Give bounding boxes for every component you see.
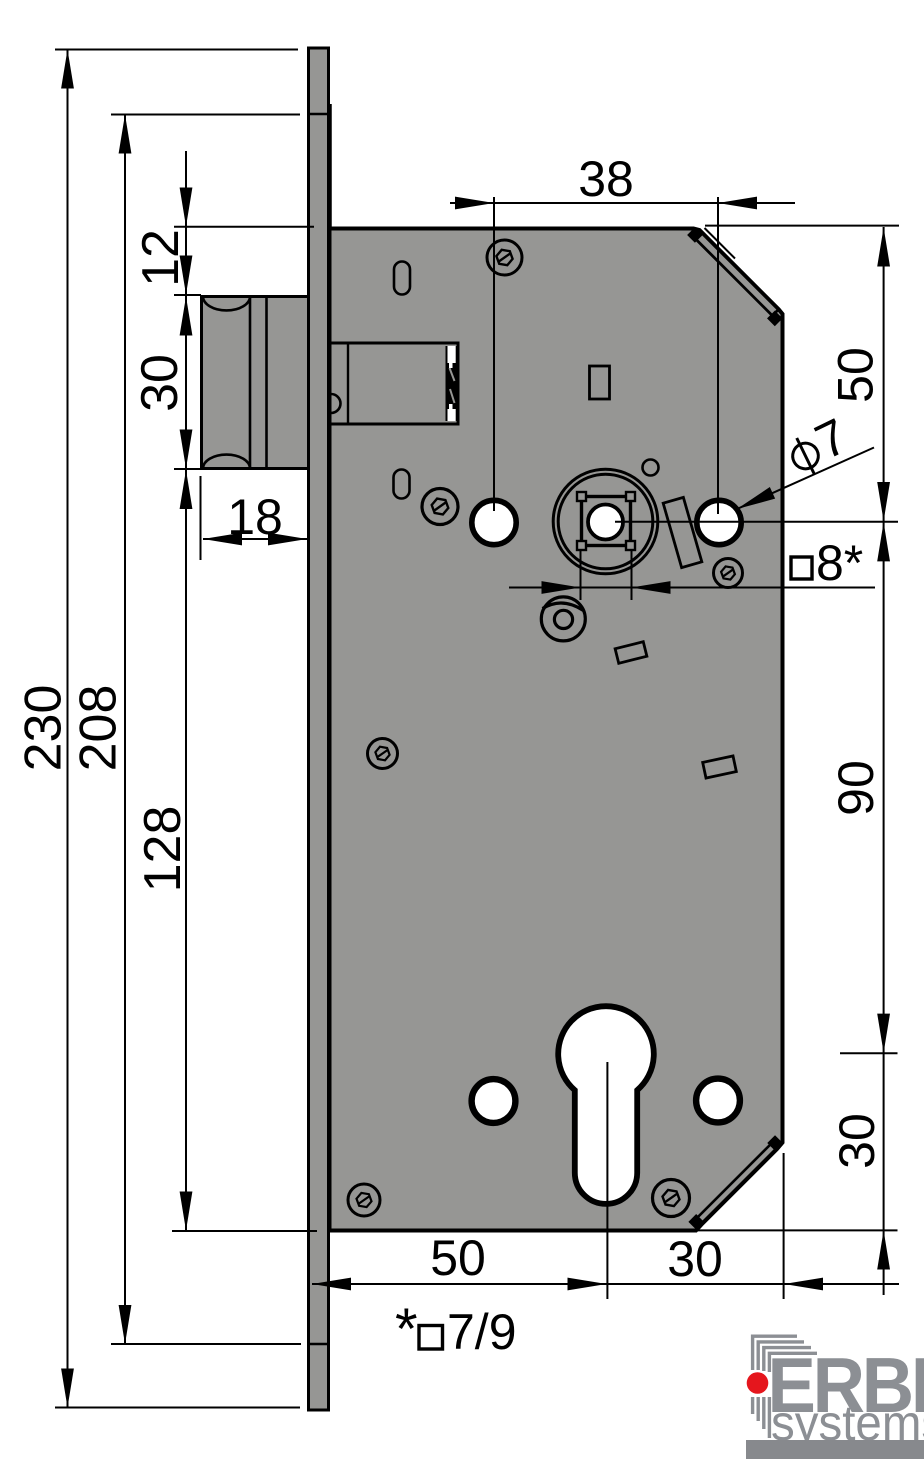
svg-text:50: 50: [430, 1230, 486, 1286]
svg-text:12: 12: [132, 229, 190, 287]
svg-text:230: 230: [15, 685, 73, 772]
svg-text:50: 50: [828, 347, 884, 403]
svg-text:30: 30: [131, 354, 189, 412]
svg-text:30: 30: [667, 1231, 723, 1287]
svg-text:*: *: [395, 1297, 418, 1362]
svg-text:8*: 8*: [816, 535, 863, 591]
svg-text:128: 128: [134, 806, 192, 893]
svg-text:208: 208: [70, 685, 128, 772]
svg-text:30: 30: [829, 1113, 885, 1169]
svg-text:38: 38: [578, 151, 634, 207]
svg-text:7/9: 7/9: [447, 1304, 517, 1360]
svg-text:7: 7: [807, 408, 857, 471]
svg-text:18: 18: [227, 489, 283, 545]
svg-text:90: 90: [828, 760, 884, 816]
